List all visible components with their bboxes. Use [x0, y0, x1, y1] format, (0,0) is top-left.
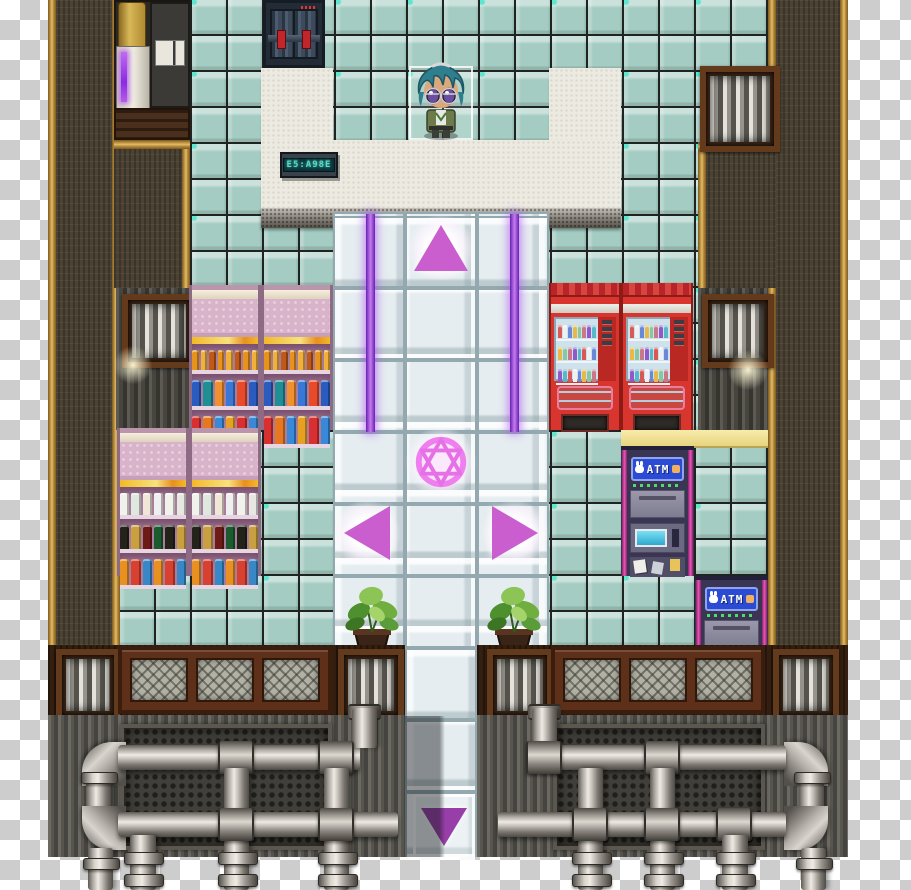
bottle	[635, 325, 639, 338]
bottle	[640, 325, 644, 338]
pipe-segment-fl	[716, 852, 756, 865]
left-alcove-lamp-glow	[112, 344, 154, 386]
vending-sticker-panel	[629, 386, 685, 410]
bottle	[587, 347, 591, 360]
pipe-segment-fl	[218, 874, 258, 887]
purple-led-strip	[121, 52, 127, 102]
potted-plant-right[interactable]	[479, 574, 549, 648]
shelf-item	[324, 350, 331, 370]
right-extension-trim-side	[698, 151, 706, 288]
vending-window	[554, 317, 600, 381]
bottle	[640, 347, 644, 360]
shelf-panel	[264, 299, 330, 337]
shelf-item	[287, 380, 296, 406]
bottle	[592, 347, 596, 360]
vending-shelf-row	[628, 341, 670, 363]
shelf-item	[215, 525, 224, 549]
bottle	[630, 347, 634, 360]
shelf-item	[309, 380, 318, 406]
shelf-topbar	[264, 290, 330, 299]
shelf-item	[215, 493, 224, 515]
shelf-item	[165, 493, 174, 515]
door-crossbar	[268, 35, 320, 42]
atm-sign: ATM	[631, 457, 684, 481]
shelf-item	[177, 559, 186, 585]
bottle	[582, 369, 586, 382]
bottle	[563, 347, 567, 360]
pipe-segment-fl	[572, 874, 612, 887]
shelf-item	[131, 493, 140, 515]
shelf-item	[177, 525, 186, 549]
shelf-row	[120, 519, 186, 553]
shelf-item	[275, 380, 284, 406]
snack-shelf-3[interactable]	[117, 428, 189, 576]
pipe-segment-sh	[572, 808, 608, 841]
mesh-frame-left	[118, 646, 332, 714]
shelf-item	[192, 493, 201, 515]
mesh-frame-right	[551, 646, 765, 714]
shelf-item	[201, 350, 208, 370]
bottle	[573, 325, 577, 338]
pipe-segment-fl	[572, 852, 612, 865]
shelf-item	[203, 380, 212, 406]
bottle	[563, 325, 567, 338]
snack-shelf-1[interactable]	[189, 285, 261, 430]
shelf-item	[192, 525, 201, 549]
vending-shelf-row	[628, 319, 670, 341]
shelf-item	[203, 525, 212, 549]
bottle	[630, 325, 634, 338]
bottle	[578, 347, 582, 360]
mesh-panel	[196, 658, 254, 702]
bottle	[582, 325, 586, 338]
shelf-topbar	[192, 290, 258, 299]
shelf-stripe	[264, 337, 330, 344]
shelf-item	[287, 416, 296, 444]
pipe-segment-fl	[318, 874, 358, 887]
snack-shelf-4[interactable]	[189, 428, 261, 576]
right-arrow-icon	[492, 506, 538, 560]
atm-1[interactable]: ATM	[621, 446, 694, 576]
shelf-item	[165, 525, 174, 549]
bottle	[645, 369, 649, 382]
shelf-item	[226, 559, 235, 585]
shelf-item	[120, 525, 129, 549]
left-wall-trim-outer	[48, 0, 56, 648]
shelf-item	[235, 350, 242, 370]
atm-sign: ATM	[705, 587, 758, 611]
bottle	[563, 369, 567, 382]
bottle	[592, 369, 596, 382]
shelf-items	[192, 487, 258, 589]
vending-window	[626, 317, 672, 381]
atm-status-leds	[707, 614, 756, 617]
bottle	[659, 325, 663, 338]
bottle	[645, 347, 649, 360]
potted-plant-left[interactable]	[337, 574, 407, 648]
door-red-clamp	[277, 30, 286, 49]
shelf-panel	[192, 442, 258, 480]
shelf-item	[226, 350, 233, 370]
shelf-item	[226, 525, 235, 549]
vent-bars	[710, 76, 770, 142]
shelf-row	[264, 344, 330, 374]
shelf-item	[218, 350, 225, 370]
pipe-segment-sh	[318, 808, 354, 841]
vending-machine-1[interactable]	[549, 283, 621, 430]
pipe-segment-sh	[644, 808, 680, 841]
pipe-segment-fl	[644, 852, 684, 865]
pipe-segment-fl	[796, 858, 833, 870]
bottle	[659, 347, 663, 360]
shelf-item	[315, 350, 322, 370]
shelf-row	[192, 553, 258, 589]
bottle	[558, 325, 562, 338]
plant-icon	[479, 574, 549, 648]
pipe-segment-fl	[716, 874, 756, 887]
shelf-stripe	[192, 337, 258, 344]
bottle	[568, 347, 572, 360]
left-arrow-icon	[344, 506, 390, 560]
plant-icon	[337, 574, 407, 648]
pipe-segment-fl	[318, 852, 358, 865]
bottle	[558, 347, 562, 360]
wood-shelf	[114, 108, 190, 140]
snack-shelf-2[interactable]	[261, 285, 333, 430]
shelf-item	[298, 380, 307, 406]
shelf-panel	[192, 299, 258, 337]
shelf-panel	[120, 442, 186, 480]
door-red-clamp	[302, 30, 311, 49]
atm-label: ATM	[721, 593, 744, 606]
vending-shelf-row	[556, 319, 598, 341]
left-wall	[48, 0, 120, 648]
shelf-item	[143, 493, 152, 515]
shelf-item	[298, 350, 305, 370]
shelf-row	[120, 553, 186, 589]
left-extension-trim-top	[114, 140, 190, 149]
wall-shadow	[405, 716, 445, 857]
bottle	[582, 347, 586, 360]
bottle	[635, 369, 639, 382]
mesh-panel	[563, 658, 621, 702]
bottle	[573, 347, 577, 360]
teleport-arrow-up[interactable]	[407, 216, 475, 280]
mascot-icon	[672, 465, 680, 473]
shelf-item	[237, 525, 246, 549]
right-alcove-lamp-glow	[726, 348, 770, 392]
shelf-item	[237, 493, 246, 515]
shelf-item	[143, 559, 152, 585]
atm-status-leds	[633, 484, 682, 487]
shelf-item	[177, 493, 186, 515]
mesh-panel	[262, 658, 320, 702]
bottle	[630, 369, 634, 382]
bottle	[640, 369, 644, 382]
pipe-segment-fl	[644, 874, 684, 887]
vending-button-panel	[670, 317, 688, 381]
shelf-item	[154, 559, 163, 585]
bottle	[650, 325, 654, 338]
pipe-segment-v	[352, 708, 377, 748]
teleport-arrow-right[interactable]	[482, 500, 548, 566]
shelf-item	[215, 559, 224, 585]
bottle	[664, 325, 668, 338]
band-vent	[773, 649, 839, 721]
atm-base	[630, 557, 685, 577]
shelf-item	[249, 559, 258, 585]
shelf-item	[275, 416, 284, 444]
up-arrow-icon	[414, 225, 468, 271]
shelf-items	[120, 487, 186, 589]
game-map-stage: E5:A98E	[0, 0, 911, 890]
vending-machine-2[interactable]	[621, 283, 693, 430]
shelf-item	[321, 380, 330, 406]
shelf-row	[192, 344, 258, 374]
rabbit-mascot-icon	[635, 465, 644, 473]
atm-slot-panel	[704, 620, 759, 648]
vending-shelf-row	[628, 363, 670, 385]
shelf-item	[203, 493, 212, 515]
shelf-stripe	[120, 480, 186, 487]
shelf-item	[203, 559, 212, 585]
bottle	[664, 347, 668, 360]
pipe-segment-fl	[81, 772, 118, 784]
right-top-vent	[700, 66, 780, 152]
bottle	[587, 369, 591, 382]
shelf-items	[264, 344, 330, 448]
pipe-segment-fl	[124, 874, 164, 887]
shelf-topbar	[120, 433, 186, 442]
shelf-item	[226, 493, 235, 515]
pipe-segment-fl	[124, 852, 164, 865]
player-character[interactable]	[407, 58, 475, 142]
shelf-item	[165, 559, 174, 585]
vending-button-panel	[598, 317, 616, 381]
atm-screen	[635, 529, 667, 547]
shelf-item	[209, 350, 216, 370]
shelf-item	[273, 350, 280, 370]
bottle	[650, 347, 654, 360]
band-vent	[56, 649, 120, 721]
shelf-item	[131, 559, 140, 585]
pipe-segment-sh	[218, 808, 254, 841]
bottle	[654, 369, 658, 382]
left-extension-trim-side	[182, 149, 190, 288]
shelf-item	[264, 350, 271, 370]
shelf-item	[237, 380, 246, 406]
player-sprite	[407, 58, 475, 142]
shelf-item	[192, 350, 199, 370]
shelf-row	[192, 374, 258, 410]
shelf-item	[131, 525, 140, 549]
vending-dispense-slot	[561, 414, 609, 432]
mesh-panel	[629, 658, 687, 702]
shelf-item	[226, 380, 235, 406]
atm-label: ATM	[647, 463, 670, 476]
magic-circle[interactable]	[405, 428, 477, 496]
rabbit-mascot-icon	[709, 595, 718, 603]
bottle	[578, 325, 582, 338]
vending-shelf-row	[556, 341, 598, 363]
shelf-item	[249, 493, 258, 515]
shelf-row	[192, 519, 258, 553]
shelf-item	[264, 416, 273, 444]
right-wall-extension	[698, 142, 776, 288]
shelf-item	[290, 350, 297, 370]
dark-machine	[150, 2, 190, 108]
bottle	[650, 369, 654, 382]
shelf-item	[249, 525, 258, 549]
bottle	[558, 369, 562, 382]
purple-beam-left	[366, 214, 375, 432]
shelf-item	[243, 350, 250, 370]
atm-screen-row	[630, 523, 685, 553]
shelf-item	[264, 380, 273, 406]
right-wall	[768, 0, 848, 648]
led-sign[interactable]: E5:A98E	[280, 152, 338, 178]
teleport-arrow-left[interactable]	[334, 500, 400, 566]
shelf-item	[154, 525, 163, 549]
bottle	[645, 325, 649, 338]
shelf-topbar	[192, 433, 258, 442]
bottle	[635, 347, 639, 360]
bottle	[654, 325, 658, 338]
bottle	[592, 325, 596, 338]
shelf-stripe	[192, 480, 258, 487]
vending-cap	[551, 283, 619, 297]
vending-sticker-panel	[557, 386, 613, 410]
shelf-item	[249, 380, 258, 406]
shelf-row	[120, 487, 186, 519]
bottle	[659, 369, 663, 382]
shelf-item	[192, 380, 201, 406]
shelf-item	[120, 493, 129, 515]
bottle	[573, 369, 577, 382]
vending-cap	[623, 283, 691, 297]
bottle	[654, 347, 658, 360]
shelf-item	[321, 416, 330, 444]
shelf-item	[192, 559, 201, 585]
bottle	[578, 369, 582, 382]
vending-stripe	[551, 304, 619, 313]
bottle	[568, 325, 572, 338]
pipe-segment-fl	[83, 858, 120, 870]
purple-beam-right	[510, 214, 519, 432]
mesh-panel	[695, 658, 753, 702]
machine-control-panel	[155, 40, 185, 66]
atm-accent-strip	[688, 450, 693, 576]
pipe-segment-sh	[526, 741, 562, 774]
pipe-segment-fl	[218, 852, 258, 865]
shelf-item	[154, 493, 163, 515]
gold-canister	[118, 2, 146, 48]
pipe-segment-fl	[794, 772, 831, 784]
atm-accent-strip	[622, 450, 627, 576]
bottle	[587, 325, 591, 338]
shelf-item	[298, 416, 307, 444]
mascot-icon	[746, 595, 754, 603]
atm-card-slot	[671, 528, 680, 548]
shelf-row	[264, 374, 330, 410]
shelf-item	[143, 525, 152, 549]
shelf-item	[252, 350, 259, 370]
shelf-row	[264, 410, 330, 448]
shelf-item	[309, 416, 318, 444]
door-indicator-lights	[301, 6, 317, 9]
atm-slot-panel	[630, 490, 685, 518]
shelf-item	[237, 559, 246, 585]
security-door[interactable]	[263, 0, 325, 68]
shelf-item	[307, 350, 314, 370]
vending-shelf-row	[556, 363, 598, 385]
right-wall-trim-outer	[840, 0, 848, 648]
led-sign-text: E5:A98E	[283, 158, 336, 172]
left-wall-extension	[114, 140, 190, 288]
shelf-item	[215, 380, 224, 406]
pipe-segment-h	[118, 812, 398, 837]
shelf-item	[120, 559, 129, 585]
hexagram-icon	[410, 431, 472, 493]
bottle	[568, 369, 572, 382]
bottle	[664, 369, 668, 382]
mesh-panel	[130, 658, 188, 702]
vending-stripe	[623, 304, 691, 313]
shelf-row	[192, 487, 258, 519]
shelf-item	[281, 350, 288, 370]
